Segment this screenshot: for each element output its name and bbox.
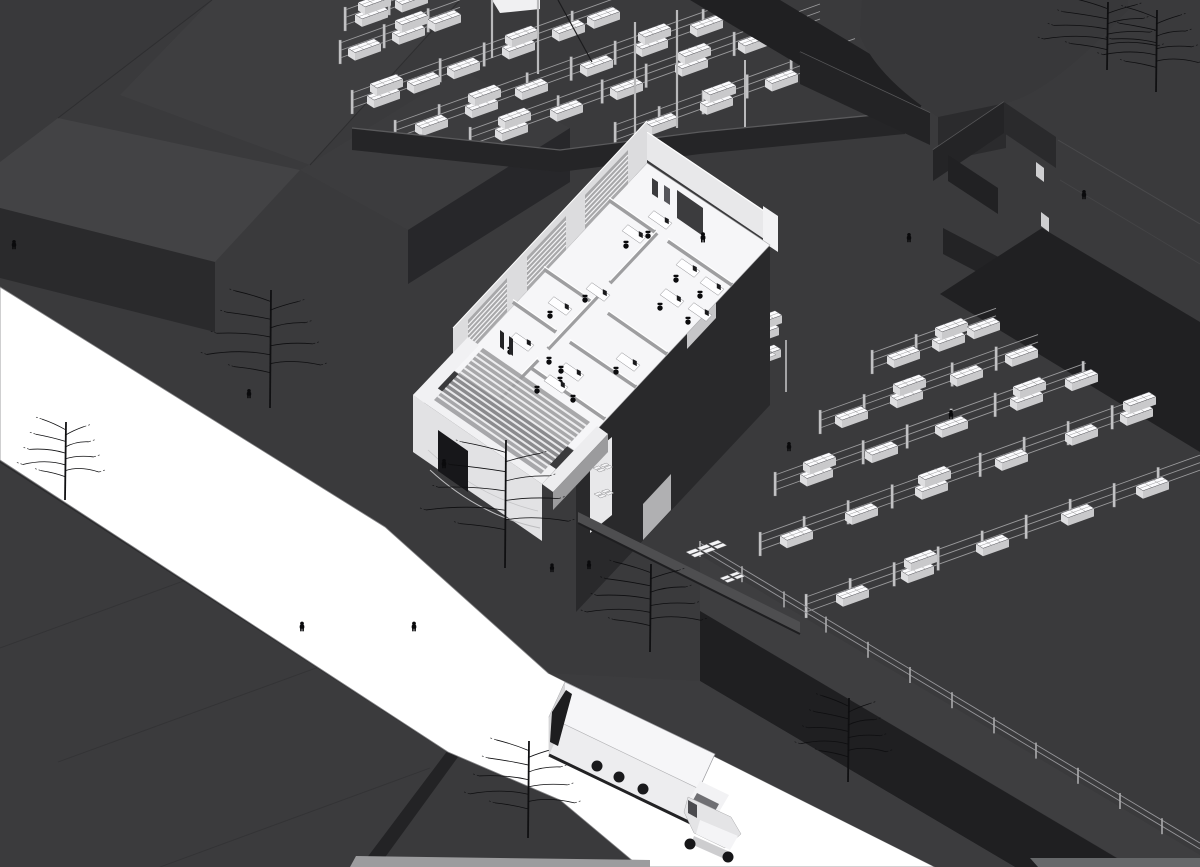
office-chair bbox=[673, 277, 678, 282]
tree-trunk bbox=[65, 422, 66, 500]
pedestrian-leg bbox=[909, 239, 911, 242]
office-chair-back bbox=[645, 231, 650, 233]
yard-rack-row-post bbox=[1113, 483, 1116, 507]
truck-rear-wheel bbox=[592, 761, 603, 772]
terrace-chair-back bbox=[570, 395, 575, 397]
door-frame bbox=[500, 330, 504, 350]
yard-rack-row-post bbox=[862, 440, 865, 464]
office-chair bbox=[623, 243, 628, 248]
pedestrian-leg bbox=[12, 246, 14, 249]
yard-rack-row-post bbox=[759, 532, 762, 556]
site-rendering-container bbox=[0, 0, 1200, 867]
person-office-leg bbox=[701, 239, 703, 242]
terrace-chair bbox=[546, 359, 551, 364]
pedestrian-leg bbox=[951, 416, 953, 419]
pedestrian-leg bbox=[444, 465, 446, 468]
office-chair-back bbox=[557, 377, 562, 379]
truck-rear-wheel bbox=[638, 784, 649, 795]
pedestrian-leg bbox=[552, 569, 553, 572]
yard-rack-row-post bbox=[906, 424, 909, 448]
pedestrian-leg bbox=[907, 239, 909, 242]
tree-trunk bbox=[848, 698, 849, 782]
yard-rack-row-post bbox=[979, 453, 982, 477]
axonometric-site-rendering bbox=[0, 0, 1200, 867]
pedestrian-leg bbox=[247, 395, 249, 398]
truck-rear-wheel bbox=[614, 772, 625, 783]
yard-rack-row-post bbox=[819, 410, 822, 434]
office-chair-back bbox=[613, 367, 618, 369]
office-chair bbox=[582, 297, 587, 302]
yard-rack-row-post bbox=[1025, 515, 1028, 539]
rack-row-top-post bbox=[645, 64, 648, 88]
pedestrian-leg bbox=[412, 628, 414, 631]
pedestrian-leg bbox=[1082, 196, 1084, 199]
terrace-chair-back bbox=[546, 357, 551, 359]
rack-row-top-post bbox=[351, 90, 354, 114]
person-office-leg bbox=[703, 239, 705, 242]
pedestrian-leg bbox=[300, 628, 302, 631]
tree-trunk bbox=[270, 290, 271, 408]
terrace-chair bbox=[558, 368, 563, 373]
office-chair bbox=[613, 369, 618, 374]
tree-trunk bbox=[650, 564, 651, 652]
rack-row-top-post bbox=[339, 40, 342, 64]
terrace-chair bbox=[534, 388, 539, 393]
truck-front-wheel bbox=[685, 839, 696, 850]
pedestrian-leg bbox=[14, 246, 16, 249]
rack-row-top-post bbox=[570, 57, 573, 81]
rack-row-top-post bbox=[733, 32, 736, 56]
yard-rack-row-post bbox=[891, 484, 894, 508]
pedestrian-leg bbox=[302, 628, 304, 631]
yard-rack-row-post bbox=[1111, 405, 1114, 429]
tree-trunk bbox=[1156, 10, 1157, 92]
terrace-chair-back bbox=[558, 366, 563, 368]
tree-trunk bbox=[528, 741, 529, 838]
rack-row-top-post bbox=[746, 74, 749, 98]
yard-rack-row-post bbox=[994, 393, 997, 417]
rack-row-top-post bbox=[483, 42, 486, 66]
terrace-chair-back bbox=[534, 386, 539, 388]
office-chair-back bbox=[547, 311, 552, 313]
rack-row-top-post bbox=[601, 79, 604, 103]
tree-trunk bbox=[1107, 2, 1108, 70]
pedestrian-leg bbox=[589, 566, 590, 569]
pedestrian-leg bbox=[949, 416, 951, 419]
pedestrian-leg bbox=[1084, 196, 1086, 199]
tree-trunk bbox=[505, 440, 506, 568]
truck-front-wheel bbox=[723, 852, 734, 863]
office-chair bbox=[547, 313, 552, 318]
office-chair-back bbox=[657, 303, 662, 305]
yard-rack-row-post bbox=[937, 546, 940, 570]
yard-rack-row-post bbox=[995, 347, 998, 371]
pedestrian-leg bbox=[414, 628, 416, 631]
yard-rack-row-post bbox=[871, 350, 874, 374]
office-chair-back bbox=[673, 275, 678, 277]
gutter-strip-bottom-right bbox=[1030, 858, 1200, 867]
office-chair-back bbox=[623, 241, 628, 243]
pedestrian-leg bbox=[249, 395, 251, 398]
pedestrian-leg bbox=[789, 448, 791, 451]
office-chair bbox=[697, 293, 702, 298]
yard-rack-row-post bbox=[893, 562, 896, 586]
office-chair bbox=[657, 305, 662, 310]
rack-row-top-post bbox=[614, 41, 617, 65]
rack-row-top-post bbox=[344, 7, 347, 31]
door-frame bbox=[509, 336, 513, 356]
office-chair bbox=[685, 319, 690, 324]
office-chair-back bbox=[582, 295, 587, 297]
terrace-chair bbox=[570, 397, 575, 402]
yard-rack-row-post bbox=[774, 472, 777, 496]
office-chair-back bbox=[697, 291, 702, 293]
office-chair-back bbox=[685, 317, 690, 319]
rack-row-top-post bbox=[383, 24, 386, 48]
pedestrian-leg bbox=[550, 569, 551, 572]
office-chair bbox=[645, 233, 650, 238]
pedestrian-leg bbox=[442, 465, 444, 468]
pedestrian-leg bbox=[587, 566, 588, 569]
pedestrian-leg bbox=[787, 448, 789, 451]
